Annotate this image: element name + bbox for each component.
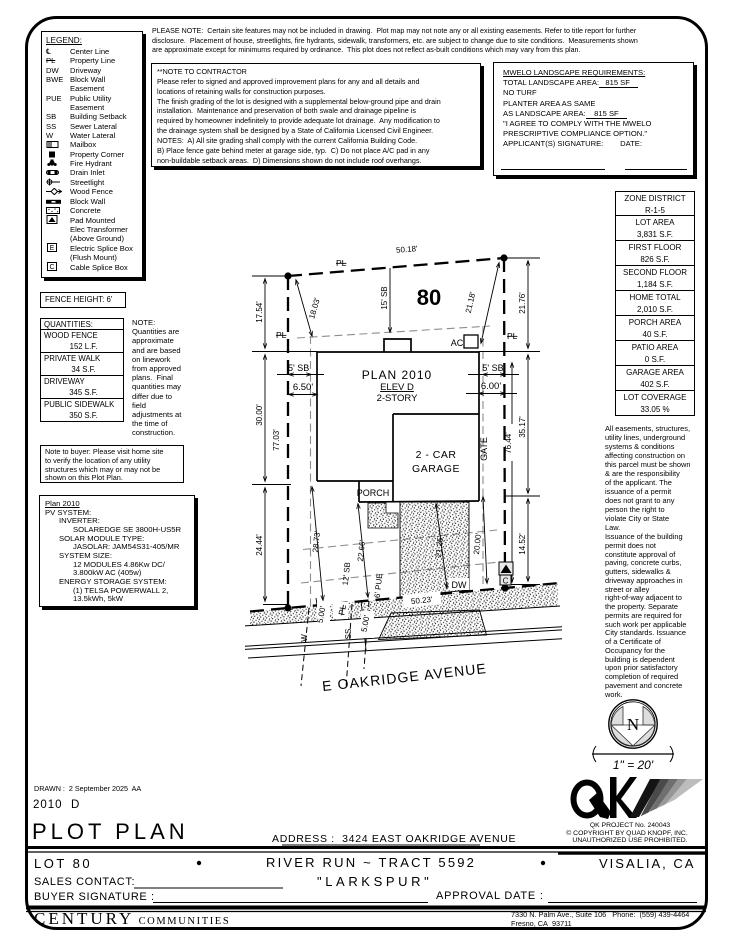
svg-text:PL: PL bbox=[276, 330, 287, 340]
svg-text:17.54': 17.54' bbox=[255, 301, 264, 323]
svg-text:24.44': 24.44' bbox=[255, 534, 264, 556]
svg-text:N: N bbox=[627, 715, 639, 734]
svg-text:1" = 20': 1" = 20' bbox=[613, 758, 654, 772]
svg-text:© COPYRIGHT BY QUAD KNOPF, IN: © COPYRIGHT BY QUAD KNOPF, INC. bbox=[566, 829, 688, 837]
svg-text:PL: PL bbox=[507, 331, 518, 341]
svg-text:15' SB: 15' SB bbox=[380, 286, 389, 309]
svg-text:22.66': 22.66' bbox=[356, 539, 367, 562]
svg-text:QK PROJECT No. 240043: QK PROJECT No. 240043 bbox=[590, 822, 671, 829]
svg-text:5' SB: 5' SB bbox=[288, 363, 309, 373]
svg-text:C: C bbox=[503, 577, 509, 586]
svg-text:C: C bbox=[49, 264, 54, 271]
svg-text:W: W bbox=[300, 634, 309, 642]
svg-text:20.00': 20.00' bbox=[472, 532, 483, 555]
svg-text:77.03': 77.03' bbox=[272, 429, 281, 451]
svg-text:2 - CAR: 2 - CAR bbox=[416, 449, 457, 461]
svg-text:PLAN 2010: PLAN 2010 bbox=[362, 368, 432, 382]
svg-text:21.18': 21.18' bbox=[464, 290, 478, 313]
svg-text:AC: AC bbox=[451, 338, 464, 348]
svg-text:5' SB: 5' SB bbox=[482, 363, 503, 373]
svg-text:UNAUTHORIZED USE PROHIBITED.: UNAUTHORIZED USE PROHIBITED. bbox=[572, 837, 687, 844]
svg-text:80: 80 bbox=[417, 285, 441, 310]
svg-text:76.44': 76.44' bbox=[504, 432, 513, 454]
svg-text:28.73': 28.73' bbox=[311, 530, 322, 553]
svg-text:35.17': 35.17' bbox=[518, 416, 527, 438]
svg-text:2-STORY: 2-STORY bbox=[377, 393, 418, 404]
svg-text:SS: SS bbox=[344, 629, 353, 640]
svg-text:12' SB: 12' SB bbox=[341, 562, 352, 586]
svg-text:50.18': 50.18' bbox=[396, 244, 419, 255]
svg-text:6.50': 6.50' bbox=[293, 382, 313, 393]
svg-text:30.00': 30.00' bbox=[255, 404, 264, 426]
svg-text:ELEV D: ELEV D bbox=[380, 382, 414, 393]
svg-text:GARAGE: GARAGE bbox=[412, 463, 460, 475]
svg-text:14.52': 14.52' bbox=[518, 533, 527, 555]
svg-text:21.76': 21.76' bbox=[518, 292, 527, 314]
svg-text:E: E bbox=[50, 245, 55, 252]
svg-text:6' PUE: 6' PUE bbox=[373, 573, 385, 598]
svg-text:PL: PL bbox=[336, 604, 348, 616]
svg-text:E OAKRIDGE AVENUE: E OAKRIDGE AVENUE bbox=[321, 660, 487, 694]
svg-text:PL: PL bbox=[336, 258, 347, 268]
svg-text:GATE: GATE bbox=[479, 437, 489, 461]
svg-text:PORCH: PORCH bbox=[357, 488, 390, 498]
svg-text:6.00': 6.00' bbox=[481, 381, 501, 392]
svg-text:18.03': 18.03' bbox=[307, 296, 322, 320]
svg-text:DW: DW bbox=[452, 580, 467, 590]
